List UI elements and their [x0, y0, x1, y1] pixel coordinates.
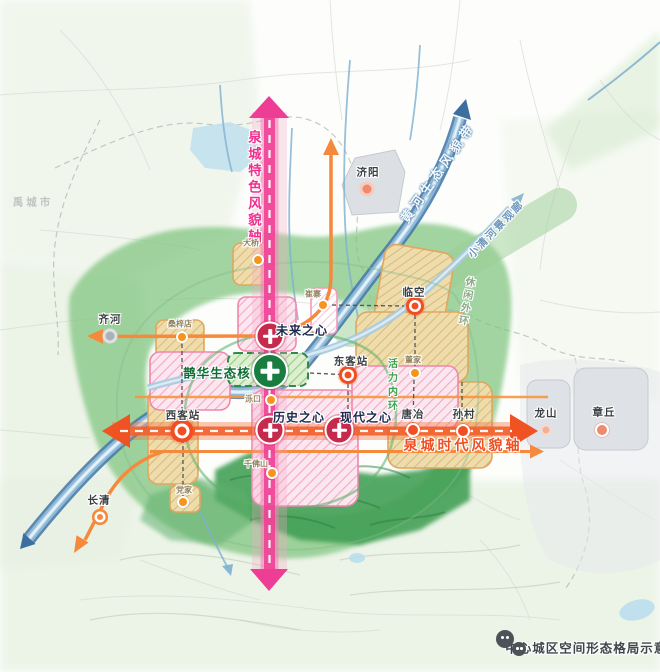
jiyang-region: [342, 150, 405, 215]
axis-label-spring-character: 泉城特色风貌轴: [243, 130, 263, 246]
publisher-logo-icon-small: [512, 642, 526, 656]
longshan-label: 龙山: [535, 406, 558, 421]
future-heart-label: 未来之心: [276, 322, 328, 339]
suncun-label: 孙村: [453, 407, 476, 422]
daqiao-node: [252, 254, 264, 266]
publisher-logo-icon: [496, 630, 514, 648]
modern-heart-label: 现代之心: [340, 409, 392, 426]
east-station-label: 东客站: [334, 354, 369, 369]
cuizhai-node: [317, 299, 329, 311]
changqing-node: [97, 514, 103, 520]
tangye-label: 唐冶: [402, 407, 425, 422]
dongjia-node: [409, 367, 421, 379]
zhangqiu-node: [595, 423, 609, 437]
qihe-node: [103, 329, 118, 344]
jiyang-node: [360, 182, 375, 197]
east-station-node: [345, 372, 352, 379]
linkong-node: [412, 303, 419, 310]
ring-label-inner-vitality: 活力内环: [384, 358, 399, 414]
west-station-node: [178, 427, 187, 436]
dangjia-node: [177, 496, 189, 508]
yucheng-region-label: 禹城市: [13, 195, 54, 210]
schematic-map: 泉城特色风貌轴 黄河生态风貌带 泉城时代风貌轴 小清河景观廊 活力内环 休闲外环…: [0, 0, 660, 672]
linkong-label: 临空: [403, 285, 426, 300]
longshan-node: [541, 425, 552, 436]
changqing-label: 长清: [88, 493, 111, 508]
dangjia-label: 党家: [176, 485, 192, 496]
cuizhai-label: 崔寨: [305, 289, 321, 300]
zhangqiu-label: 章丘: [593, 405, 616, 420]
map-base-graphic: [0, 0, 660, 672]
luokou-node: [265, 394, 277, 406]
figure-caption: 中心城区空间形态格局示意图: [505, 638, 660, 657]
dongjia-label: 董家: [405, 355, 421, 366]
luokou-label: 泺口: [245, 394, 261, 405]
history-heart-label: 历史之心: [273, 409, 325, 426]
jiyang-label: 济阳: [357, 165, 380, 180]
west-station-label: 西客站: [166, 408, 201, 423]
qianfoshan-label: 千佛山: [244, 459, 268, 470]
qihe-label: 齐河: [99, 312, 122, 327]
quehua-eco-core-label: 鹊华生态核: [183, 363, 251, 382]
axis-label-spring-era: 泉城时代风貌轴: [404, 435, 523, 455]
daqiao-label: 大桥: [243, 238, 259, 249]
sangzidian-node: [176, 331, 188, 343]
quehua-eco-core-node: [252, 353, 288, 389]
sangzidian-label: 桑梓店: [168, 319, 192, 330]
